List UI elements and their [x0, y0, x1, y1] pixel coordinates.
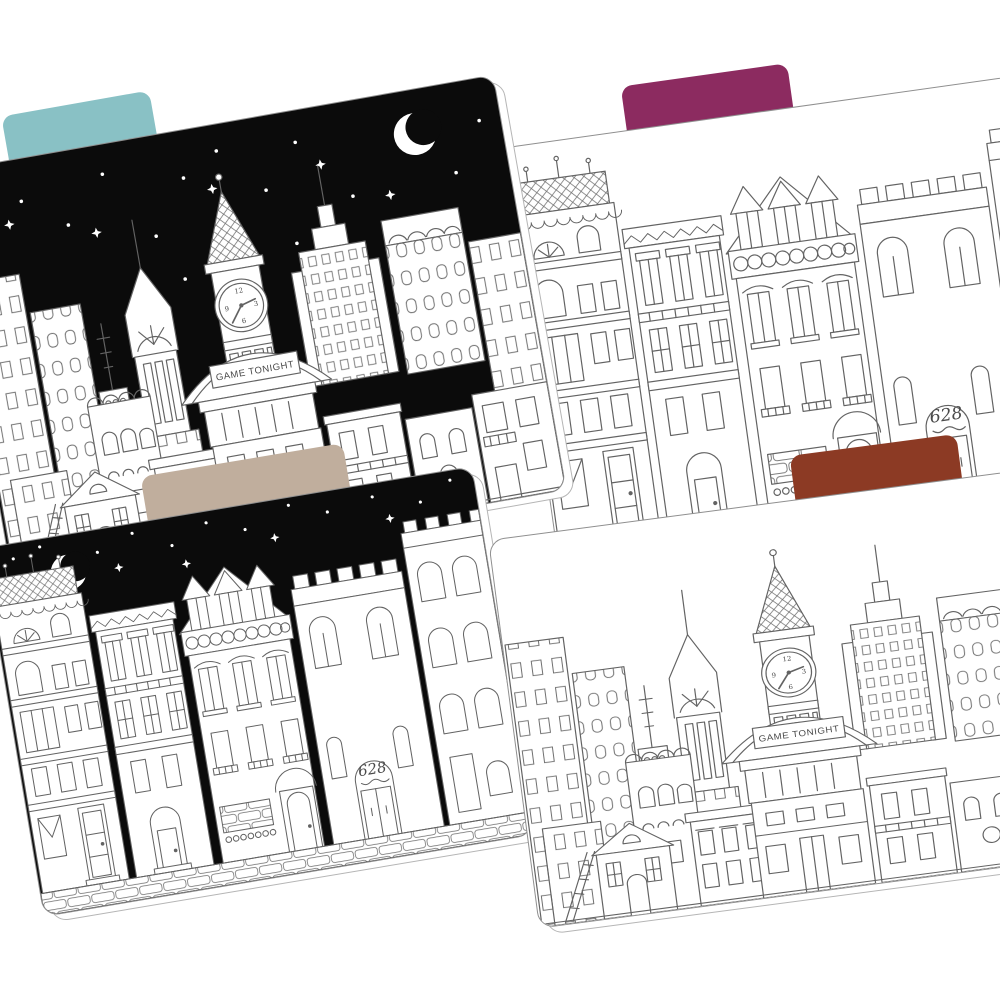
folder-face — [488, 465, 1000, 929]
folder-day-skyline — [488, 465, 1000, 927]
product-photo-canvas — [0, 0, 1000, 1000]
folder-night-row-houses — [0, 466, 532, 915]
